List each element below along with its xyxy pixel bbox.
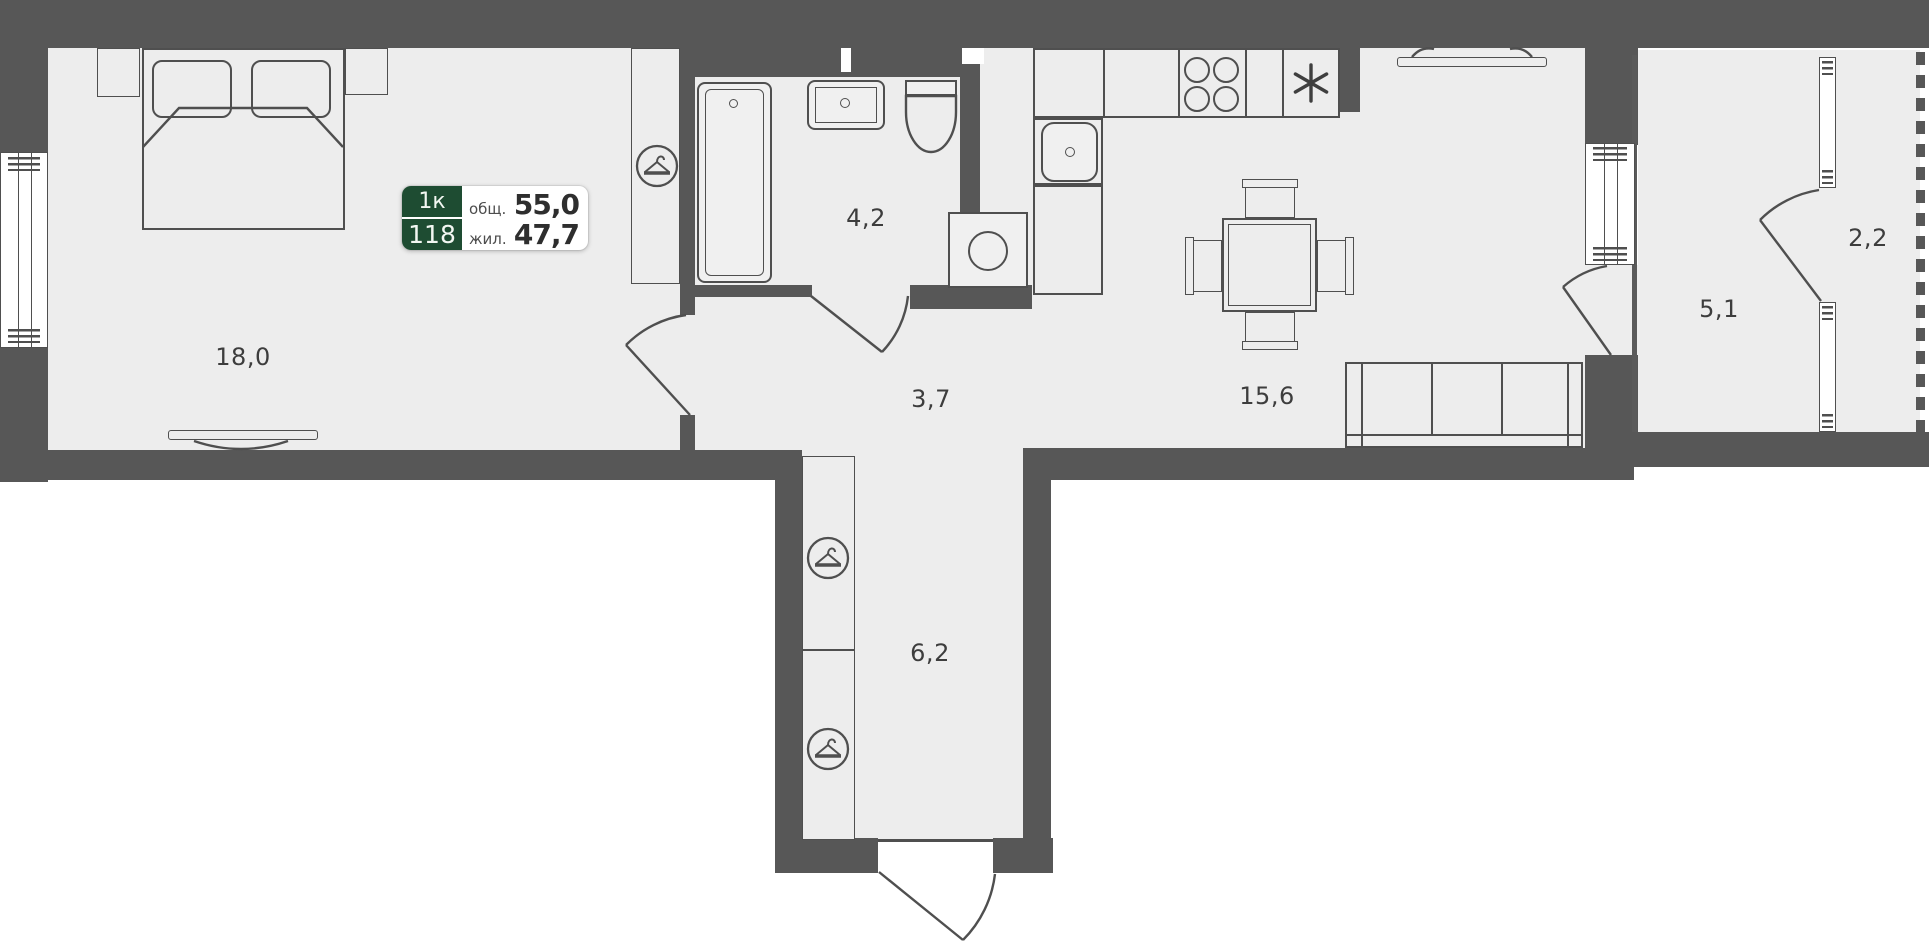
kitchen-counter-divider: [1245, 48, 1247, 118]
door-entrance: [879, 872, 995, 940]
window-balcony-partition-upper: [1819, 57, 1836, 188]
kitchen-counter-divider: [1103, 48, 1105, 118]
dining-table-inner: [1228, 224, 1311, 306]
stove-burner-icon: [1184, 86, 1210, 112]
nightstand-left: [97, 48, 140, 97]
wall-slit-2: [962, 48, 984, 64]
total-area-label: общ.: [469, 200, 506, 218]
stove-burner-icon: [1184, 57, 1210, 83]
unit-number: 118: [402, 219, 462, 250]
window-ticks: [1822, 414, 1833, 428]
wall-bathroom-right: [960, 64, 980, 212]
living-area-row: жил. 47,7: [469, 218, 579, 248]
corridor-closet: [802, 456, 855, 840]
wall-bathroom-bottom-right: [910, 285, 1032, 309]
wall-bathroom-bottom-left: [688, 285, 812, 297]
room-label-bedroom: 18,0: [215, 343, 270, 371]
total-area-row: общ. 55,0: [469, 188, 579, 218]
chair-left: [1192, 240, 1222, 292]
chair-top-back: [1242, 179, 1298, 188]
hanger-icon: [805, 535, 851, 581]
floor-plan: 18,0 4,2 3,7 15,6 6,2 5,1 2,2 1к 118 общ…: [0, 0, 1929, 941]
radiator-kitchen: [1397, 57, 1547, 67]
wall-bedroom-divider: [680, 40, 695, 315]
pillow: [251, 60, 331, 118]
floor-balcony-doorway: [1585, 265, 1638, 355]
shower-drain: [729, 99, 738, 108]
wall-kitchen-stub: [1340, 48, 1360, 112]
chair-left-back: [1185, 237, 1194, 295]
window-left: [0, 152, 48, 348]
apartment-info-badge: 1к 118 общ. 55,0 жил. 47,7: [402, 186, 588, 250]
chair-right: [1317, 240, 1347, 292]
wall-top: [0, 0, 1929, 48]
kitchen-counter-divider: [1282, 48, 1284, 118]
sofa-cushion-line: [1501, 364, 1503, 435]
wall-right-stub: [1585, 355, 1638, 450]
kitchen-counter-column: [1033, 185, 1103, 295]
living-area-value: 47,7: [514, 218, 579, 250]
entrance-threshold: [878, 839, 993, 842]
entrance-opening: [878, 841, 993, 873]
closet-divider: [803, 649, 854, 651]
wall-balcony-bottom: [1632, 432, 1929, 467]
room-label-kitchen-living: 15,6: [1239, 382, 1294, 410]
wall-corridor-bottom-left: [775, 838, 878, 873]
window-ticks: [8, 157, 40, 171]
shower-tray: [705, 89, 764, 276]
sofa: [1345, 362, 1583, 448]
room-label-corridor: 6,2: [910, 639, 950, 667]
total-area-value: 55,0: [514, 188, 579, 221]
kitchen-counter-divider: [1178, 48, 1180, 118]
hanger-icon: [805, 726, 851, 772]
washing-machine-drum: [968, 231, 1008, 271]
wall-bottom-right: [1051, 448, 1634, 480]
pillow: [152, 60, 232, 118]
asterisk-icon: [1289, 61, 1333, 105]
window-balcony-partition-lower: [1819, 302, 1836, 432]
toilet-tank: [905, 80, 957, 96]
stove-burner-icon: [1213, 57, 1239, 83]
wall-corridor-right: [1023, 448, 1051, 873]
wall-bathroom-top: [688, 44, 980, 77]
window-ticks: [1822, 306, 1833, 320]
badge-areas-panel: общ. 55,0 жил. 47,7: [462, 186, 588, 250]
bathroom-sink-faucet: [840, 98, 850, 108]
stove-burner-icon: [1213, 86, 1239, 112]
wall-corridor-left: [775, 450, 802, 873]
window-ticks: [1593, 247, 1627, 261]
window-ticks: [1593, 147, 1627, 161]
window-ticks: [1822, 170, 1833, 184]
room-label-loggia-2: 2,2: [1848, 224, 1888, 252]
wall-slit-1: [841, 48, 851, 72]
sofa-cushion-line: [1431, 364, 1433, 435]
window-pane: [18, 153, 32, 347]
kitchen-sink-drain: [1065, 147, 1075, 157]
window-pane: [1604, 144, 1618, 264]
balcony-glazing-dashed: [1916, 52, 1925, 432]
room-label-loggia: 5,1: [1699, 295, 1739, 323]
chair-right-back: [1345, 237, 1354, 295]
wall-right-top: [1585, 0, 1638, 145]
window-ticks: [1822, 61, 1833, 75]
radiator-bedroom: [168, 430, 318, 440]
room-label-bathroom: 4,2: [846, 204, 886, 232]
chair-top: [1245, 184, 1295, 218]
wall-bottom-left: [0, 450, 782, 480]
hanger-icon: [634, 143, 680, 189]
living-area-label: жил.: [469, 230, 507, 248]
sofa-back-line: [1347, 434, 1581, 436]
nightstand-right: [345, 48, 388, 95]
window-ticks: [8, 329, 40, 343]
wall-bedroom-divider-stub: [680, 415, 695, 452]
chair-bottom-back: [1242, 341, 1298, 350]
badge-green-panel: 1к 118: [402, 186, 462, 250]
window-living-right: [1585, 143, 1635, 265]
room-label-hallway: 3,7: [911, 385, 951, 413]
room-type: 1к: [402, 186, 462, 219]
